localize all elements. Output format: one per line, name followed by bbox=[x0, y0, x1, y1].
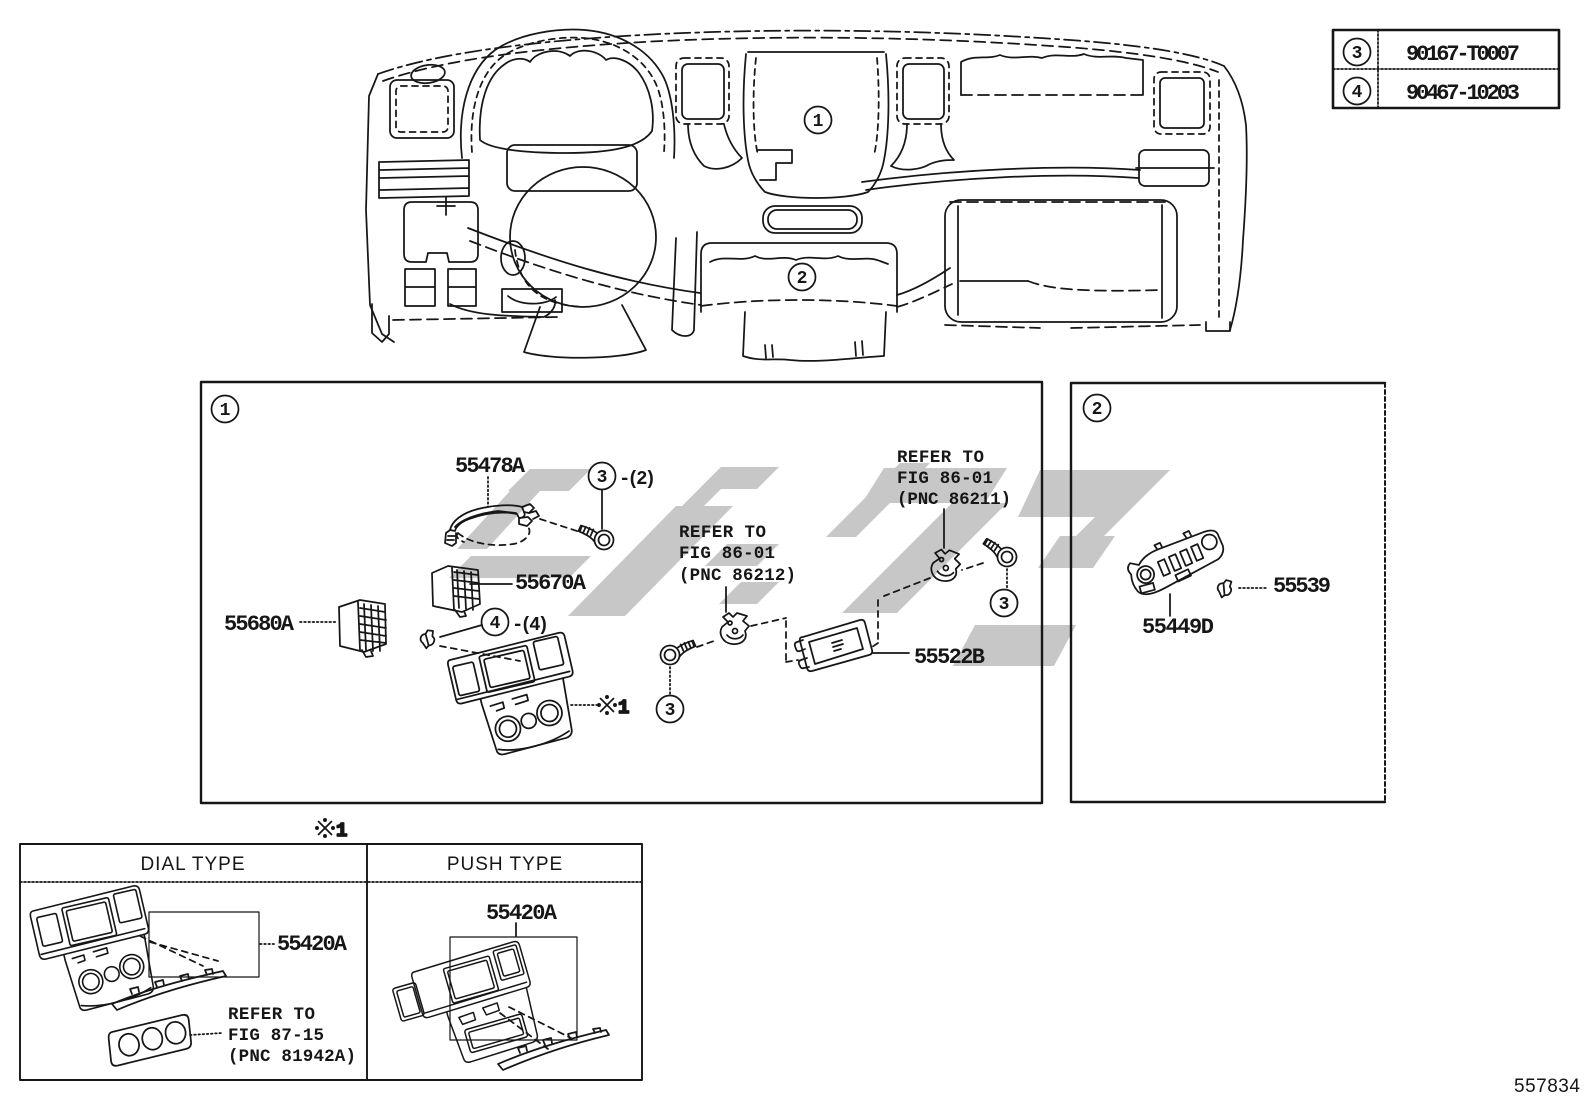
svg-text:2: 2 bbox=[1092, 400, 1103, 420]
svg-text:-(4): -(4) bbox=[512, 614, 549, 636]
svg-text:DIAL TYPE: DIAL TYPE bbox=[140, 854, 245, 875]
svg-text:REFER TO: REFER TO bbox=[228, 1005, 315, 1025]
svg-text:1: 1 bbox=[220, 401, 231, 421]
svg-text:55522B: 55522B bbox=[914, 645, 985, 670]
svg-text:(PNC 81942A): (PNC 81942A) bbox=[228, 1047, 356, 1067]
svg-text:55478A: 55478A bbox=[455, 454, 526, 479]
svg-text:55420A: 55420A bbox=[277, 932, 348, 957]
svg-text:3: 3 bbox=[597, 468, 608, 488]
svg-text:PUSH TYPE: PUSH TYPE bbox=[447, 854, 563, 875]
svg-text:REFER TO: REFER TO bbox=[679, 523, 766, 543]
svg-text:4: 4 bbox=[490, 614, 501, 634]
svg-text:-(2): -(2) bbox=[619, 468, 656, 490]
svg-text:1: 1 bbox=[618, 697, 629, 719]
svg-text:FIG 86-01: FIG 86-01 bbox=[897, 469, 993, 489]
svg-text:REFER TO: REFER TO bbox=[897, 448, 984, 468]
svg-text:55680A: 55680A bbox=[224, 612, 295, 637]
svg-text:FIG 86-01: FIG 86-01 bbox=[679, 544, 775, 564]
svg-text:FIG 87-15: FIG 87-15 bbox=[228, 1026, 324, 1046]
svg-text:1: 1 bbox=[336, 820, 347, 842]
svg-text:55670A: 55670A bbox=[515, 571, 587, 596]
svg-text:55449D: 55449D bbox=[1142, 615, 1214, 640]
svg-text:(PNC 86211): (PNC 86211) bbox=[897, 490, 1011, 510]
svg-text:3: 3 bbox=[1352, 44, 1363, 64]
svg-text:55539: 55539 bbox=[1273, 574, 1331, 599]
svg-text:90467-10203: 90467-10203 bbox=[1406, 81, 1520, 106]
svg-text:2: 2 bbox=[797, 269, 808, 289]
svg-text:557834: 557834 bbox=[1514, 1076, 1580, 1097]
svg-text:4: 4 bbox=[1352, 83, 1363, 103]
svg-text:1: 1 bbox=[813, 112, 824, 132]
svg-text:55420A: 55420A bbox=[486, 901, 558, 926]
svg-text:3: 3 bbox=[999, 595, 1010, 615]
svg-text:90167-T0007: 90167-T0007 bbox=[1406, 42, 1520, 67]
svg-text:(PNC 86212): (PNC 86212) bbox=[679, 566, 796, 586]
svg-text:3: 3 bbox=[665, 701, 676, 721]
